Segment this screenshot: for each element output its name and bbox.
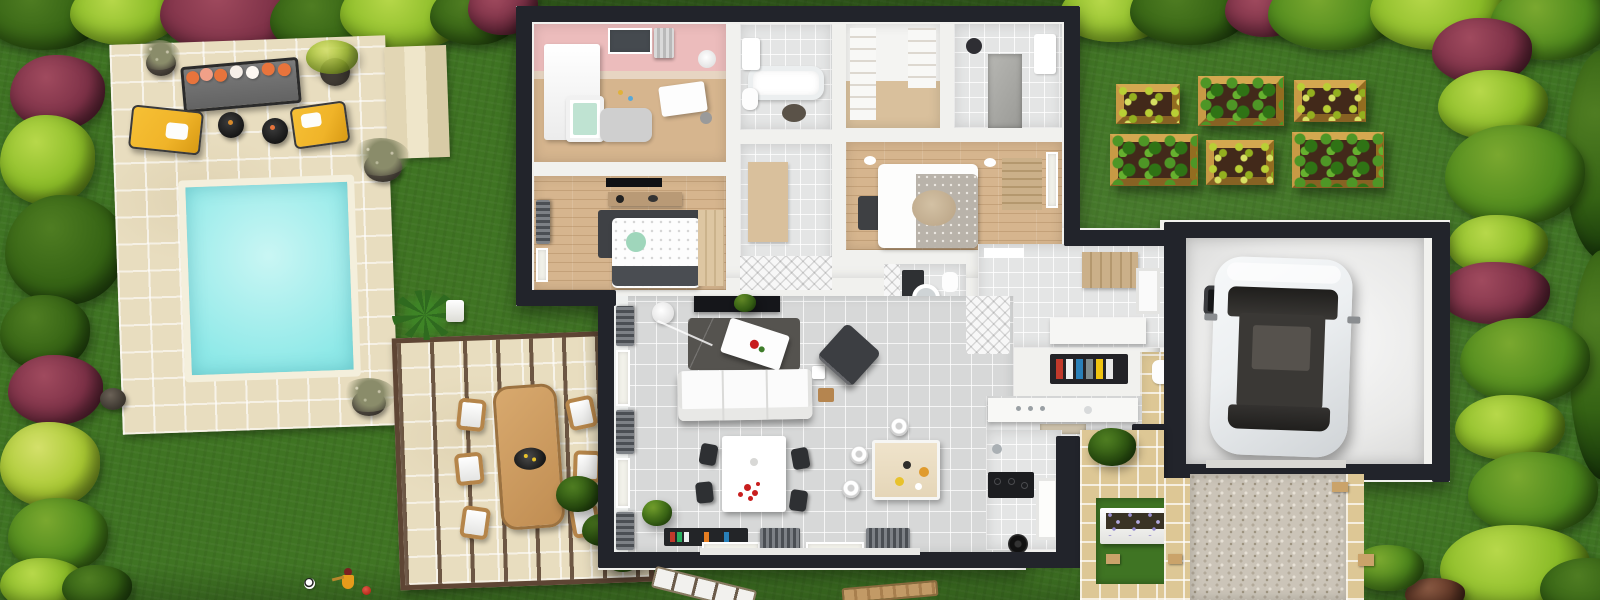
kitchen-tall-unit <box>1036 478 1058 540</box>
path-light <box>1332 482 1348 492</box>
vinyl-record <box>1008 534 1028 554</box>
tv-flat <box>606 178 662 187</box>
wardrobe-shelves <box>850 28 876 120</box>
path-light <box>1358 554 1374 566</box>
nursery-rug <box>600 108 652 142</box>
exterior-wall <box>1164 222 1186 482</box>
driveway-border <box>1346 474 1364 600</box>
bed <box>612 218 700 288</box>
shower-fixture <box>1034 34 1056 74</box>
bar-stool <box>850 446 868 464</box>
planter-bed <box>1294 80 1366 122</box>
planter-bed <box>1292 132 1384 188</box>
cooktop <box>988 472 1034 498</box>
toilet <box>942 272 958 292</box>
storage-counter <box>1050 318 1146 344</box>
room-wardrobe <box>846 24 940 128</box>
wardrobe-shelves <box>908 28 936 88</box>
car <box>1209 256 1354 459</box>
side-table <box>818 388 834 402</box>
dining-table <box>722 436 786 512</box>
master-bench <box>1002 158 1042 210</box>
kitchen-counter <box>988 398 1138 422</box>
soccer-ball <box>304 578 315 589</box>
path-light <box>1168 554 1182 564</box>
room-shower <box>954 24 1062 128</box>
terrace-threshold <box>700 548 920 555</box>
gravel-driveway <box>1190 474 1348 600</box>
entry-fern <box>1088 428 1136 466</box>
houseplant <box>642 500 672 526</box>
snack-tray <box>812 366 825 379</box>
master-bed <box>878 164 978 248</box>
shower-wall <box>988 54 1022 128</box>
kitchen-sink <box>1084 406 1092 414</box>
room-hallway <box>740 144 832 290</box>
living-curtain <box>616 306 634 346</box>
car-rear-window <box>1227 404 1330 432</box>
dining-chair <box>695 481 714 504</box>
room-kitchen <box>986 430 1062 550</box>
toys <box>300 566 380 598</box>
bathtub <box>748 66 824 100</box>
bedroom-wardrobe <box>698 210 724 286</box>
exterior-wall <box>516 6 532 306</box>
storage-cabinet <box>1082 252 1138 288</box>
houseplant <box>734 294 756 312</box>
washing-machine <box>966 38 982 54</box>
car-sunroof <box>1252 325 1312 371</box>
living-curtain <box>616 512 634 550</box>
dressing-nook <box>1050 354 1128 384</box>
car-mirror <box>1204 313 1217 320</box>
bar-stool <box>842 480 860 498</box>
crib <box>566 96 604 142</box>
bath-rug <box>782 104 806 122</box>
car-mirror <box>1347 316 1360 323</box>
room-living <box>614 296 1014 554</box>
bedroom-curtain <box>536 200 550 244</box>
room-bedroom <box>534 176 726 290</box>
room-nursery <box>534 24 726 162</box>
exterior-wall <box>1064 6 1080 246</box>
path-light <box>1106 554 1120 564</box>
exterior-wall <box>598 290 614 568</box>
hall-accent-wall <box>740 256 832 290</box>
living-curtain <box>616 410 634 454</box>
desk-chair <box>700 112 712 124</box>
bedroom-shelf <box>608 192 682 206</box>
hall-cabinet <box>748 162 788 242</box>
toy-ball <box>362 586 371 595</box>
exterior-wall <box>516 6 1080 22</box>
sofa <box>678 369 813 421</box>
garden-floor-plan-scene <box>0 0 1600 600</box>
exterior-wall <box>1432 222 1450 482</box>
kitchen-island <box>872 440 940 500</box>
exterior-wall <box>1164 222 1450 238</box>
lounge-chair-indoor <box>817 323 882 388</box>
toy-doll <box>338 568 356 592</box>
living-accent-wall <box>966 296 1010 354</box>
car-roof <box>1236 313 1325 410</box>
toilet <box>742 88 758 110</box>
room-bathroom-main <box>740 24 832 130</box>
exterior-wall <box>1056 436 1080 566</box>
room-garage <box>1186 238 1424 464</box>
planter-bed <box>1110 134 1198 186</box>
planter-bed <box>1116 84 1180 124</box>
bathroom-sink <box>742 38 760 70</box>
planter-bed <box>1206 140 1274 185</box>
planter-bed <box>1198 76 1284 126</box>
nursery-desk <box>658 81 708 117</box>
dining-chair <box>790 447 810 471</box>
dining-chair <box>789 489 809 512</box>
driveway-border <box>1164 478 1192 600</box>
bar-stool <box>890 418 908 436</box>
room-master-bedroom <box>846 142 1062 250</box>
garage-door <box>1206 460 1346 468</box>
floor-lamp <box>698 50 716 68</box>
front-door <box>1136 268 1160 314</box>
vegetable-planters <box>1100 60 1400 200</box>
dining-chair <box>698 443 718 467</box>
pendant-lamp <box>652 302 674 324</box>
